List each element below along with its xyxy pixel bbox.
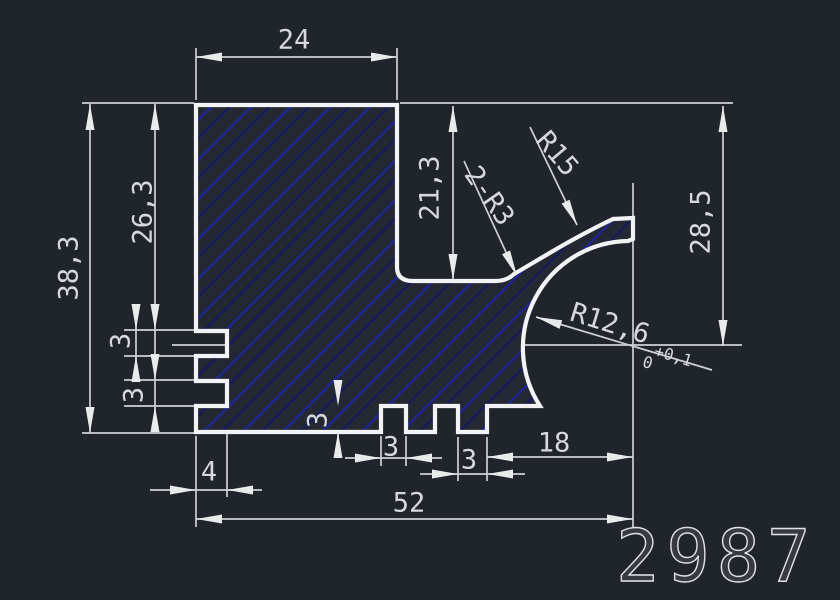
dim-channel-depth: 21,3 [417,155,444,220]
dim-step-height: 3 [305,412,332,428]
dim-total-height: 38,3 [56,235,83,300]
dim-tooth-width: 3 [461,447,477,474]
dim-total-width: 52 [393,490,426,517]
dim-top-width: 24 [278,27,311,54]
dim-slot2-height: 3 [121,387,148,403]
dim-right-offset: 18 [538,430,571,457]
dim-slot1-height: 3 [108,333,135,349]
cad-drawing: 24 38,3 26,3 3 3 21,3 2-R3 R15 28,5 3 3 … [0,0,840,600]
dim-right-height: 28,5 [688,189,715,254]
dim-slot-depth: 4 [201,459,217,486]
dim-upper-height: 26,3 [130,179,157,244]
dim-notch-width: 3 [383,434,399,461]
part-number: 2987 [616,520,817,592]
